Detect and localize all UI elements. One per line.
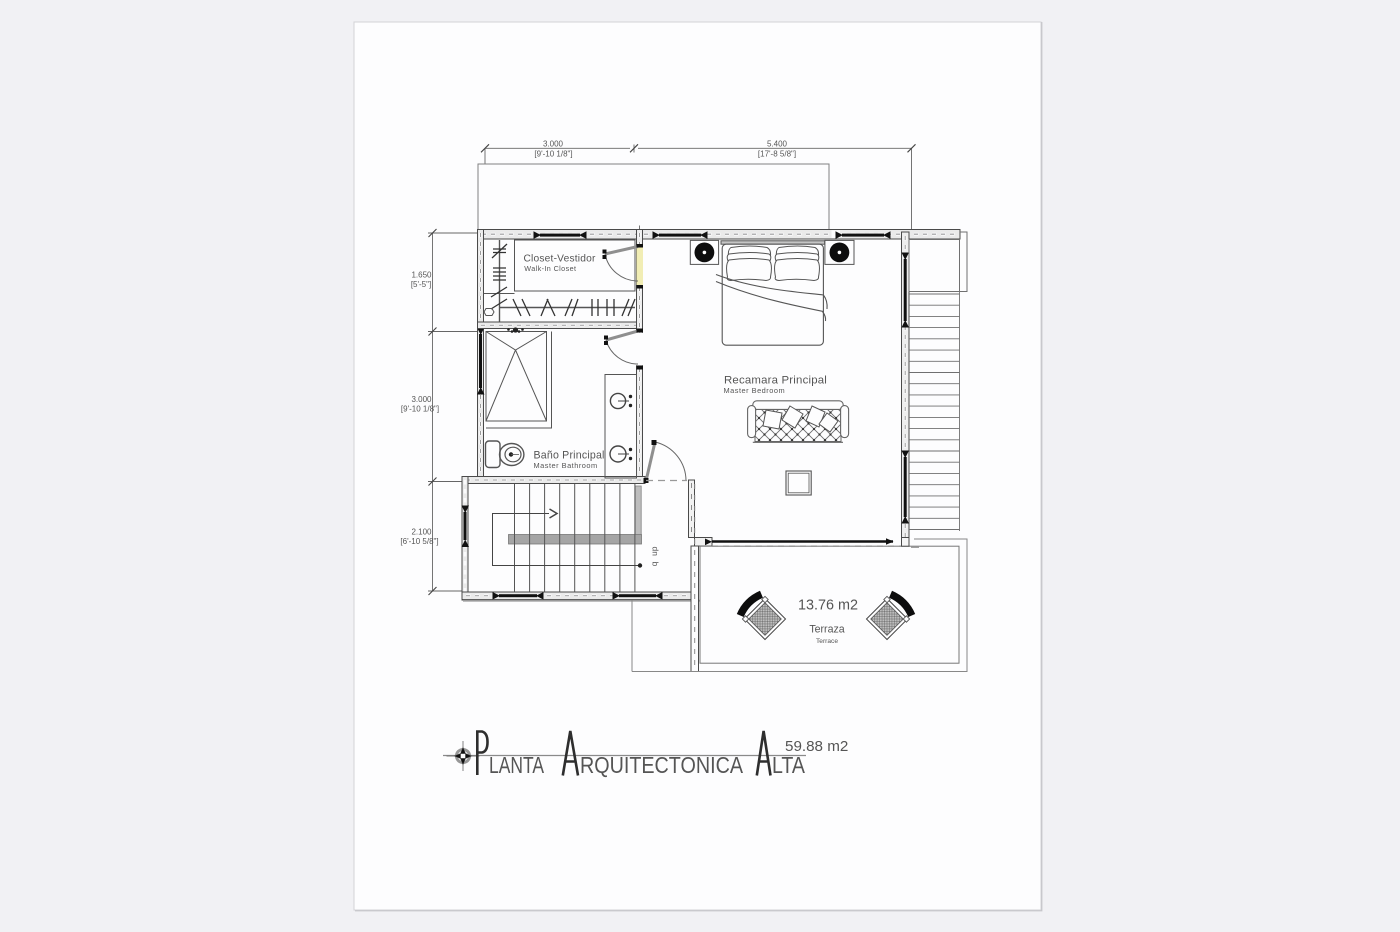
svg-text:Recamara Principal: Recamara Principal — [724, 375, 827, 387]
svg-text:3.000: 3.000 — [543, 140, 564, 149]
svg-text:Baño Principal: Baño Principal — [534, 450, 605, 462]
svg-text:Terraza: Terraza — [809, 624, 844, 636]
svg-text:2.100: 2.100 — [411, 527, 432, 536]
svg-text:59.88 m2: 59.88 m2 — [785, 738, 848, 755]
svg-text:3.000: 3.000 — [411, 395, 432, 404]
svg-text:b: b — [651, 562, 661, 567]
svg-text:Master Bathroom: Master Bathroom — [534, 461, 598, 470]
svg-text:LTA: LTA — [772, 752, 805, 778]
svg-text:5.400: 5.400 — [767, 140, 788, 149]
svg-text:Master Bedroom: Master Bedroom — [724, 386, 786, 395]
svg-text:[6'-10 5/8"]: [6'-10 5/8"] — [400, 537, 438, 546]
svg-text:Walk-In Closet: Walk-In Closet — [524, 264, 576, 273]
svg-text:[17'-8 5/8"]: [17'-8 5/8"] — [758, 149, 796, 158]
svg-text:RQUITECTONICA: RQUITECTONICA — [580, 752, 743, 778]
svg-text:[5'-5"]: [5'-5"] — [411, 280, 431, 289]
svg-text:13.76 m2: 13.76 m2 — [798, 598, 858, 614]
svg-text:dn: dn — [651, 547, 661, 557]
svg-text:Terrace: Terrace — [816, 638, 838, 645]
svg-text:[9'-10 1/8"]: [9'-10 1/8"] — [401, 405, 439, 414]
svg-text:1.650: 1.650 — [411, 271, 432, 280]
svg-text:[9'-10 1/8"]: [9'-10 1/8"] — [534, 149, 572, 158]
svg-text:LANTA: LANTA — [489, 752, 544, 778]
